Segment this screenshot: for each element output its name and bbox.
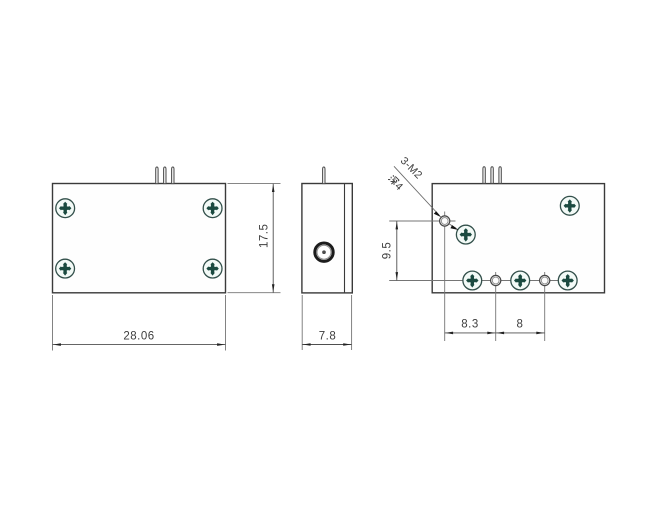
svg-text:28.06: 28.06	[123, 331, 154, 343]
svg-text:7.8: 7.8	[319, 330, 337, 342]
svg-text:8.3: 8.3	[461, 318, 479, 330]
svg-text:17.5: 17.5	[259, 224, 271, 248]
svg-text:3-M2: 3-M2	[398, 155, 425, 182]
svg-text:8: 8	[517, 318, 524, 330]
svg-text:9.5: 9.5	[382, 242, 394, 260]
